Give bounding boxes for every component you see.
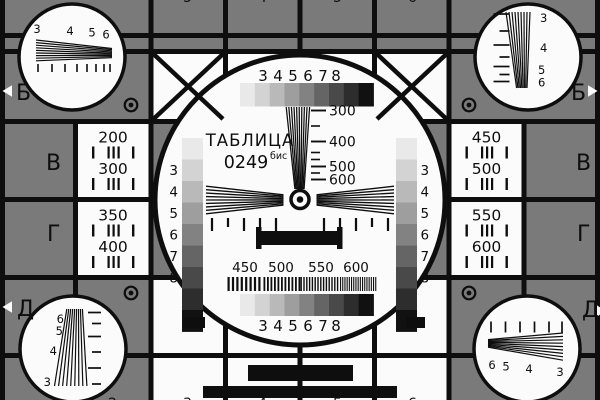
burst-line bbox=[323, 277, 324, 291]
corner-fan-digit: 3 bbox=[540, 11, 547, 25]
burst-line bbox=[371, 277, 372, 291]
top-scale-digit: 3 bbox=[258, 67, 268, 85]
gray-step bbox=[396, 224, 417, 246]
cell-number: 600 bbox=[472, 238, 502, 256]
gray-step bbox=[182, 160, 203, 182]
cell-number: 300 bbox=[98, 160, 128, 178]
right-staircase-digit: 6 bbox=[421, 228, 430, 244]
corner-fan-digit: 5 bbox=[88, 26, 95, 40]
burst-frequency-label: 450 bbox=[232, 260, 258, 276]
gray-step bbox=[182, 246, 203, 268]
left-staircase-digit: 3 bbox=[169, 163, 178, 179]
cell-tick bbox=[132, 225, 134, 237]
top-scale-digit: 8 bbox=[331, 67, 341, 85]
gray-step bbox=[299, 294, 314, 316]
column-digit-top: 3 bbox=[183, 0, 192, 6]
cell-tick bbox=[506, 178, 508, 190]
row-letter-right-d: Д bbox=[582, 298, 599, 323]
gray-step bbox=[285, 83, 300, 107]
black-reference-mark bbox=[406, 317, 425, 328]
burst-line bbox=[369, 277, 370, 291]
burst-line bbox=[334, 277, 335, 291]
corner-fan-digit: 3 bbox=[556, 365, 563, 379]
burst-line bbox=[271, 277, 273, 291]
grid-vline bbox=[0, 0, 5, 400]
gray-step bbox=[240, 83, 255, 107]
row-letter-left-g: Г bbox=[47, 222, 60, 247]
cell-tick bbox=[466, 225, 468, 237]
top-scale-digit: 7 bbox=[318, 67, 328, 85]
cell-number: 550 bbox=[472, 207, 502, 225]
br-fan-line bbox=[488, 342, 563, 343]
gray-step bbox=[396, 181, 417, 203]
cell-tick bbox=[466, 256, 468, 268]
left-staircase-digit: 4 bbox=[169, 185, 178, 201]
cell-tick bbox=[491, 225, 493, 237]
gray-step bbox=[396, 203, 417, 225]
burst-line bbox=[329, 277, 330, 291]
bottom-scale-digit: 7 bbox=[318, 317, 328, 335]
burst-line bbox=[285, 277, 287, 291]
column-digit-bottom: 3 bbox=[183, 396, 192, 400]
cell-tick bbox=[481, 147, 483, 159]
burst-line bbox=[303, 277, 304, 291]
top-scale-digit: 5 bbox=[288, 67, 298, 85]
column-digit-bottom: 2 bbox=[108, 396, 117, 400]
burst-line bbox=[301, 277, 302, 291]
gray-step bbox=[182, 203, 203, 225]
corner-fan-digit: 5 bbox=[502, 360, 509, 374]
burst-line bbox=[288, 277, 290, 291]
cell-tick bbox=[132, 147, 134, 159]
burst-line bbox=[326, 277, 327, 291]
column-digit-top: 4 bbox=[258, 0, 267, 6]
cell-tick bbox=[486, 256, 488, 268]
burst-line bbox=[342, 277, 343, 291]
burst-line bbox=[312, 277, 313, 291]
wedge-frequency-label: 400 bbox=[329, 135, 356, 151]
burst-line bbox=[355, 277, 356, 291]
right-staircase-digit: 7 bbox=[421, 249, 430, 265]
burst-frequency-label: 600 bbox=[343, 260, 369, 276]
cell-tick bbox=[132, 256, 134, 268]
cell-tick bbox=[118, 178, 120, 190]
burst-line bbox=[299, 277, 301, 291]
bottom-scale-digit: 4 bbox=[273, 317, 283, 335]
column-digit-bottom: 6 bbox=[408, 396, 417, 400]
cell-tick bbox=[113, 147, 115, 159]
gray-step bbox=[314, 294, 329, 316]
corner-fan-digit: 5 bbox=[56, 324, 63, 338]
row-letter-right-g: Г bbox=[577, 222, 590, 247]
cell-number: 450 bbox=[472, 129, 502, 147]
cell-tick bbox=[92, 225, 94, 237]
burst-line bbox=[317, 277, 318, 291]
sync-bar-cap bbox=[256, 227, 262, 249]
gray-step bbox=[182, 267, 203, 289]
sync-bar-body bbox=[259, 231, 340, 245]
burst-line bbox=[358, 277, 359, 291]
right-staircase-digit: 5 bbox=[421, 206, 430, 222]
gray-step bbox=[396, 267, 417, 289]
top-scale-digit: 6 bbox=[303, 67, 313, 85]
cell-tick bbox=[113, 178, 115, 190]
left-staircase-digit: 5 bbox=[169, 206, 178, 222]
bottom-scale-digit: 5 bbox=[288, 317, 298, 335]
gray-step bbox=[240, 294, 255, 316]
cell-tick bbox=[108, 225, 110, 237]
corner-fan-digit: 6 bbox=[102, 28, 109, 42]
corner-fan-digit: 4 bbox=[66, 24, 73, 38]
burst-line bbox=[292, 277, 294, 291]
gray-step bbox=[396, 289, 417, 311]
cell-number: 400 bbox=[98, 238, 128, 256]
cell-tick bbox=[118, 225, 120, 237]
corner-fan-digit: 4 bbox=[540, 41, 547, 55]
right-staircase-digit: 8 bbox=[421, 271, 430, 287]
corner-fan-digit: 3 bbox=[33, 22, 40, 36]
small-bullseye-dot bbox=[129, 103, 134, 108]
burst-line bbox=[353, 277, 354, 291]
burst-line bbox=[373, 277, 374, 291]
cell-tick bbox=[132, 178, 134, 190]
row-letter-right-v: В bbox=[576, 151, 591, 176]
burst-line bbox=[228, 277, 230, 291]
gray-step bbox=[396, 160, 417, 182]
sync-bar-cap bbox=[337, 227, 343, 249]
burst-line bbox=[344, 277, 345, 291]
row-letter-left-v: В bbox=[46, 151, 61, 176]
burst-line bbox=[295, 277, 297, 291]
burst-frequency-label: 500 bbox=[268, 260, 294, 276]
burst-line bbox=[245, 277, 247, 291]
gray-step bbox=[359, 83, 374, 107]
burst-line bbox=[267, 277, 269, 291]
bottom-scale-digit: 6 bbox=[303, 317, 313, 335]
burst-line bbox=[360, 277, 361, 291]
column-digit-top: 5 bbox=[333, 0, 342, 6]
burst-line bbox=[364, 277, 365, 291]
bottom-black-bar-lower bbox=[203, 386, 397, 398]
row-letter-left-d: Д bbox=[17, 297, 34, 322]
cell-tick bbox=[108, 256, 110, 268]
burst-line bbox=[254, 277, 256, 291]
burst-line bbox=[250, 277, 252, 291]
gray-step bbox=[329, 294, 344, 316]
corner-fan-digit: 6 bbox=[538, 76, 545, 90]
gray-step bbox=[270, 294, 285, 316]
burst-line bbox=[320, 277, 321, 291]
cell-tick bbox=[491, 256, 493, 268]
cell-tick bbox=[481, 256, 483, 268]
gray-step bbox=[396, 138, 417, 160]
gray-step bbox=[344, 294, 359, 316]
corner-fan-digit: 4 bbox=[525, 362, 532, 376]
top-scale-digit: 4 bbox=[273, 67, 283, 85]
burst-line bbox=[337, 277, 338, 291]
tv-test-card-0249: 345678345678345678345678 300400500600 45… bbox=[0, 0, 600, 400]
left-staircase-digit: 6 bbox=[169, 228, 178, 244]
cell-tick bbox=[486, 178, 488, 190]
cell-tick bbox=[92, 256, 94, 268]
bottom-scale-digit: 8 bbox=[331, 317, 341, 335]
gray-step bbox=[182, 181, 203, 203]
burst-line bbox=[331, 277, 332, 291]
corner-fan-digit: 3 bbox=[44, 375, 51, 389]
cell-tick bbox=[108, 147, 110, 159]
burst-line bbox=[281, 277, 283, 291]
card-number: 0249 bbox=[224, 153, 269, 173]
gray-step bbox=[182, 138, 203, 160]
burst-line bbox=[232, 277, 234, 291]
corner-fan-digit: 4 bbox=[50, 344, 57, 358]
cell-tick bbox=[506, 147, 508, 159]
cell-tick bbox=[113, 225, 115, 237]
burst-line bbox=[366, 277, 367, 291]
cell-tick bbox=[466, 178, 468, 190]
cell-tick bbox=[118, 256, 120, 268]
burst-line bbox=[236, 277, 238, 291]
burst-line bbox=[340, 277, 341, 291]
black-reference-mark bbox=[183, 317, 205, 328]
row-letter-right-b: Б bbox=[571, 81, 586, 106]
cell-number: 500 bbox=[472, 160, 502, 178]
cell-tick bbox=[113, 256, 115, 268]
test-card-canvas: 345678345678345678345678 300400500600 45… bbox=[0, 0, 600, 400]
gray-step bbox=[285, 294, 300, 316]
burst-line bbox=[264, 277, 266, 291]
corner-fan-digit: 6 bbox=[488, 358, 495, 372]
gray-step bbox=[255, 83, 270, 107]
burst-line bbox=[258, 277, 260, 291]
small-bullseye-dot bbox=[467, 103, 472, 108]
gray-step bbox=[270, 83, 285, 107]
cell-tick bbox=[108, 178, 110, 190]
burst-line bbox=[306, 277, 307, 291]
gray-step bbox=[314, 83, 329, 107]
grid-vline bbox=[595, 0, 600, 400]
center-bullseye-dot bbox=[297, 196, 304, 203]
cell-number: 350 bbox=[98, 207, 128, 225]
burst-line bbox=[241, 277, 243, 291]
burst-line bbox=[351, 277, 352, 291]
burst-line bbox=[375, 277, 376, 291]
burst-line bbox=[362, 277, 363, 291]
column-digit-top: 6 bbox=[408, 0, 417, 6]
right-staircase-digit: 3 bbox=[421, 163, 430, 179]
cell-tick bbox=[466, 147, 468, 159]
burst-line bbox=[315, 277, 316, 291]
gray-step bbox=[396, 246, 417, 268]
left-staircase-digit: 7 bbox=[169, 249, 178, 265]
gray-step bbox=[182, 224, 203, 246]
cell-tick bbox=[506, 256, 508, 268]
cell-tick bbox=[486, 225, 488, 237]
gray-step bbox=[182, 289, 203, 311]
cell-tick bbox=[92, 147, 94, 159]
cell-tick bbox=[506, 225, 508, 237]
card-title: ТАБЛИЦА bbox=[205, 131, 295, 150]
burst-line bbox=[309, 277, 310, 291]
cell-number: 200 bbox=[98, 129, 128, 147]
cell-tick bbox=[481, 225, 483, 237]
gray-step bbox=[255, 294, 270, 316]
wedge-line bbox=[301, 107, 302, 189]
bottom-black-bar-upper bbox=[248, 365, 353, 381]
burst-line bbox=[349, 277, 350, 291]
cell-tick bbox=[491, 147, 493, 159]
burst-line bbox=[278, 277, 280, 291]
small-bullseye-dot bbox=[129, 291, 134, 296]
column-digit-bottom: 5 bbox=[333, 396, 342, 400]
row-letter-left-b: Б bbox=[16, 81, 31, 106]
wedge-frequency-label: 300 bbox=[329, 104, 356, 120]
cell-tick bbox=[486, 147, 488, 159]
wedge-frequency-label: 600 bbox=[329, 173, 356, 189]
cell-tick bbox=[491, 178, 493, 190]
column-digit-bottom: 4 bbox=[258, 396, 267, 400]
small-bullseye-dot bbox=[467, 291, 472, 296]
cell-tick bbox=[92, 178, 94, 190]
burst-line bbox=[347, 277, 348, 291]
gray-step bbox=[359, 294, 374, 316]
wedge-line bbox=[299, 107, 300, 189]
left-staircase-digit: 8 bbox=[169, 271, 178, 287]
cell-tick bbox=[481, 178, 483, 190]
cell-tick bbox=[118, 147, 120, 159]
card-number-suffix: бис bbox=[270, 151, 287, 162]
burst-frequency-label: 550 bbox=[308, 260, 334, 276]
bottom-scale-digit: 3 bbox=[258, 317, 268, 335]
right-staircase-digit: 4 bbox=[421, 185, 430, 201]
gray-step bbox=[299, 83, 314, 107]
burst-line bbox=[274, 277, 276, 291]
